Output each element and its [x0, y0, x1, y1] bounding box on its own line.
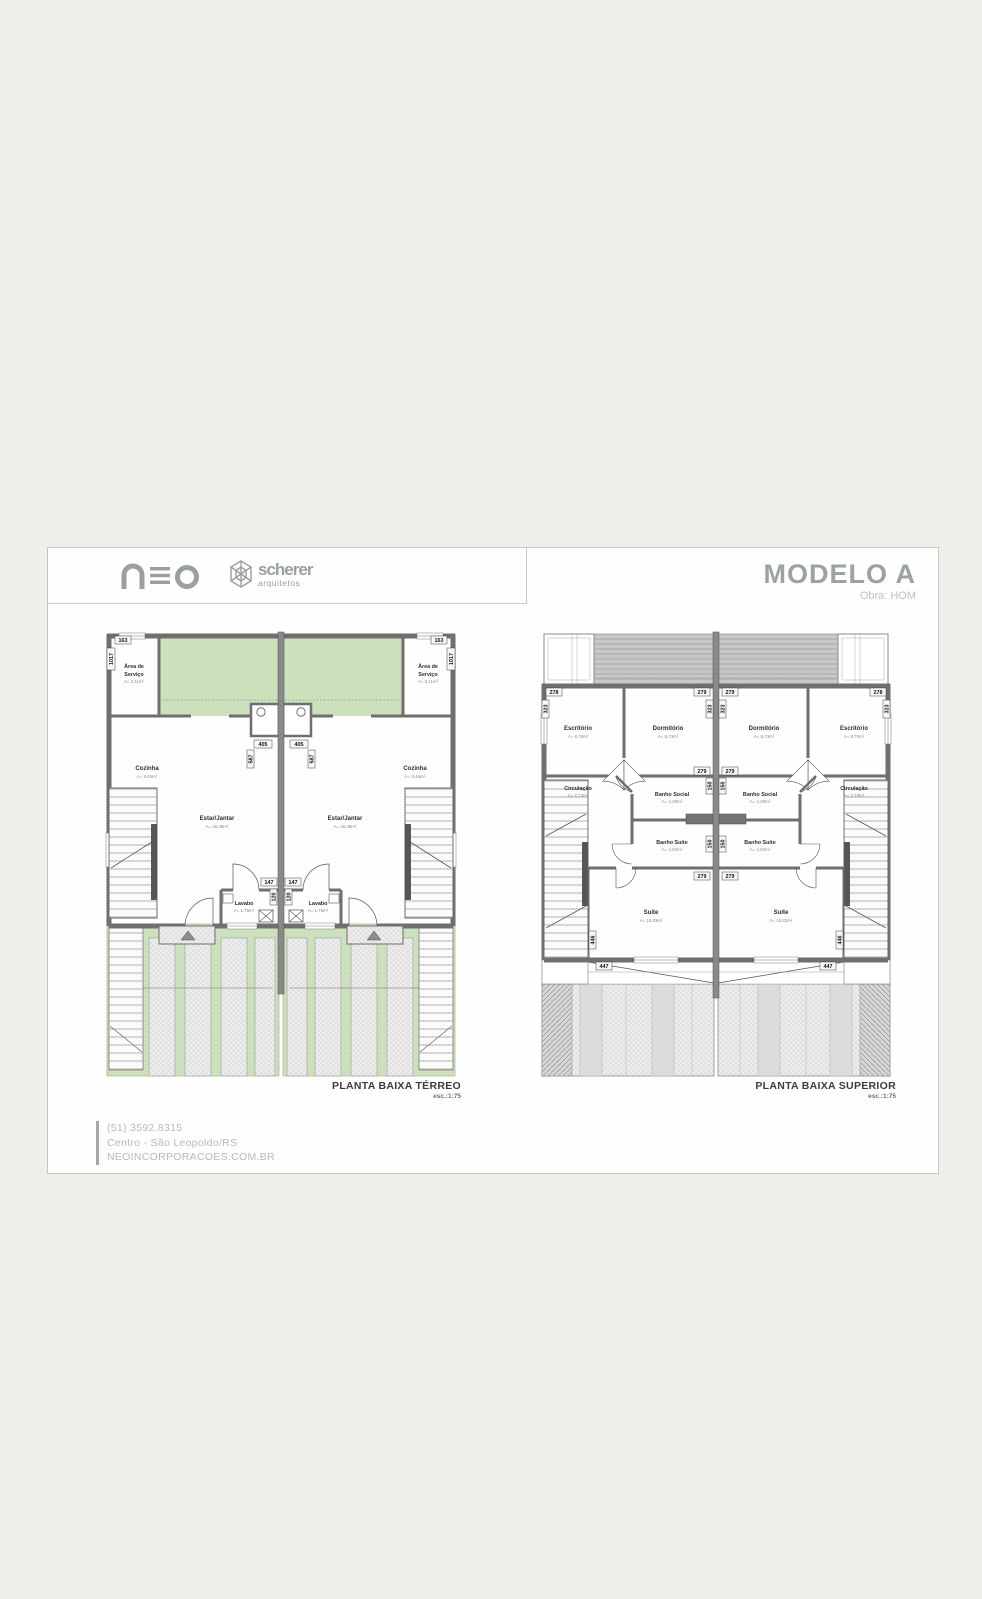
drawing-sheet: scherer arquitetos MODELO A Obra: HOM	[47, 547, 939, 1174]
dim-label: 446	[838, 936, 844, 945]
room-area: A= 3,11m²	[418, 679, 439, 684]
dim-label: 1017	[109, 653, 115, 665]
dim-label: 447	[824, 964, 833, 970]
room-area: A= 1,76m²	[308, 908, 329, 913]
neo-o-glyph	[178, 568, 197, 587]
dim-label: 163	[435, 638, 444, 644]
dim-label: 405	[259, 742, 268, 748]
footer-divider-bar	[96, 1121, 99, 1165]
room-area: A= 8,73m²	[658, 734, 679, 739]
footer: (51) 3592.8315 Centro - São Leopoldo/RS …	[96, 1121, 275, 1165]
room-area: A= 9,46m²	[137, 774, 158, 779]
room-label: Estar/Jantar	[328, 816, 363, 822]
room-area: A= 2,73m²	[568, 793, 589, 798]
room-area: A= 15,83m²	[640, 918, 663, 923]
room-label: Dormitório	[749, 726, 780, 732]
room-area: A= 28,38m²	[334, 824, 357, 829]
room-area: A= 3,62m²	[750, 847, 771, 852]
room-label: Lavabo	[235, 901, 255, 907]
plan-superior: 278 278 323 323 279 279 323 323 279 279 …	[536, 628, 896, 1078]
room-label: Cozinha	[135, 766, 159, 772]
footer-phone: (51) 3592.8315	[107, 1121, 275, 1136]
room-label: Circulação	[840, 786, 868, 792]
dim-label: 323	[885, 705, 891, 714]
room-area: A= 28,38m²	[206, 824, 229, 829]
room-area: A= 2,73m²	[844, 793, 865, 798]
caption-superior-scale: esc.:1:75	[755, 1093, 896, 1100]
logo-box: scherer arquitetos	[48, 548, 527, 604]
page-title: MODELO A	[764, 560, 917, 588]
footer-address: Centro - São Leopoldo/RS	[107, 1136, 275, 1151]
room-area: A= 3,38m²	[662, 799, 683, 804]
dim-label: 323	[721, 705, 727, 714]
party-wall	[713, 632, 719, 998]
party-wall	[278, 632, 284, 994]
dim-label: 150	[721, 840, 727, 849]
dim-label: 1017	[449, 653, 455, 665]
room-label: Banho Social	[655, 792, 690, 798]
room-area: A= 3,38m²	[750, 799, 771, 804]
room-area: A= 3,11m²	[124, 679, 145, 684]
room-area: A= 15,83m²	[770, 918, 793, 923]
dim-label: 278	[550, 690, 559, 696]
dim-label: 120	[287, 893, 293, 902]
dim-label: 323	[708, 705, 714, 714]
dim-label: 323	[544, 705, 550, 714]
plan-terreo: 163 1017 163 1017 405 405 587 587 147 14…	[101, 628, 461, 1078]
obra-subtitle: Obra: HOM	[764, 590, 917, 602]
dim-label: 279	[726, 769, 735, 775]
room-label: Área de	[418, 663, 438, 670]
caption-superior: PLANTA BAIXA SUPERIOR	[755, 1080, 896, 1092]
terreo-unit-left	[106, 633, 279, 1076]
room-area: A= 3,62m²	[662, 847, 683, 852]
dim-label: 150	[708, 782, 714, 791]
caption-terreo: PLANTA BAIXA TÉRREO	[332, 1080, 461, 1092]
room-label: Lavabo	[309, 901, 329, 907]
footer-website: NEOINCORPORACOES.COM.BR	[107, 1150, 275, 1165]
caption-terreo-scale: esc.:1:75	[332, 1093, 461, 1100]
room-area: A= 8,75m²	[844, 734, 865, 739]
dim-label: 163	[119, 638, 128, 644]
room-label: Serviço	[124, 672, 144, 678]
room-label: Estar/Jantar	[200, 816, 235, 822]
room-label: Escritório	[840, 726, 868, 732]
room-label: Banho Suíte	[656, 840, 687, 846]
room-label: Serviço	[418, 672, 438, 678]
room-label: Suíte	[774, 910, 789, 916]
dim-label: 587	[310, 755, 316, 764]
room-area: A= 8,75m²	[568, 734, 589, 739]
room-area: A= 8,73m²	[754, 734, 775, 739]
room-area: A= 9,46m²	[405, 774, 426, 779]
neo-logo	[118, 561, 202, 596]
dim-label: 405	[295, 742, 304, 748]
dim-label: 147	[265, 880, 274, 886]
neo-e-bar	[150, 581, 170, 584]
dim-label: 279	[698, 874, 707, 880]
dim-label: 587	[249, 755, 255, 764]
room-label: Banho Social	[743, 792, 778, 798]
scherer-flower-icon	[228, 559, 254, 589]
terreo-unit-right	[283, 633, 456, 1076]
neo-e-bar	[150, 574, 170, 577]
room-label: Suíte	[644, 910, 659, 916]
scherer-name: scherer	[258, 561, 312, 578]
room-label: Banho Suíte	[744, 840, 775, 846]
dim-label: 147	[289, 880, 298, 886]
room-label: Circulação	[564, 786, 592, 792]
dim-label: 120	[272, 893, 278, 902]
superior-unit-right	[718, 634, 891, 1076]
dim-label: 279	[698, 690, 707, 696]
neo-n-glyph	[124, 566, 142, 589]
dim-label: 446	[591, 936, 597, 945]
room-label: Escritório	[564, 726, 592, 732]
scherer-subtitle: arquitetos	[258, 579, 312, 588]
page-background: scherer arquitetos MODELO A Obra: HOM	[0, 0, 982, 1599]
room-label: Cozinha	[403, 766, 427, 772]
dim-label: 447	[600, 964, 609, 970]
scherer-logo: scherer arquitetos	[228, 559, 312, 589]
room-label: Dormitório	[653, 726, 684, 732]
dim-label: 279	[726, 874, 735, 880]
superior-unit-left	[541, 634, 714, 1076]
room-area: A= 1,76m²	[234, 908, 255, 913]
dim-label: 279	[698, 769, 707, 775]
dim-label: 279	[726, 690, 735, 696]
neo-e-bar	[150, 567, 170, 570]
dim-label: 150	[708, 840, 714, 849]
dim-label: 150	[721, 782, 727, 791]
dim-label: 278	[874, 690, 883, 696]
room-label: Área de	[124, 663, 144, 670]
